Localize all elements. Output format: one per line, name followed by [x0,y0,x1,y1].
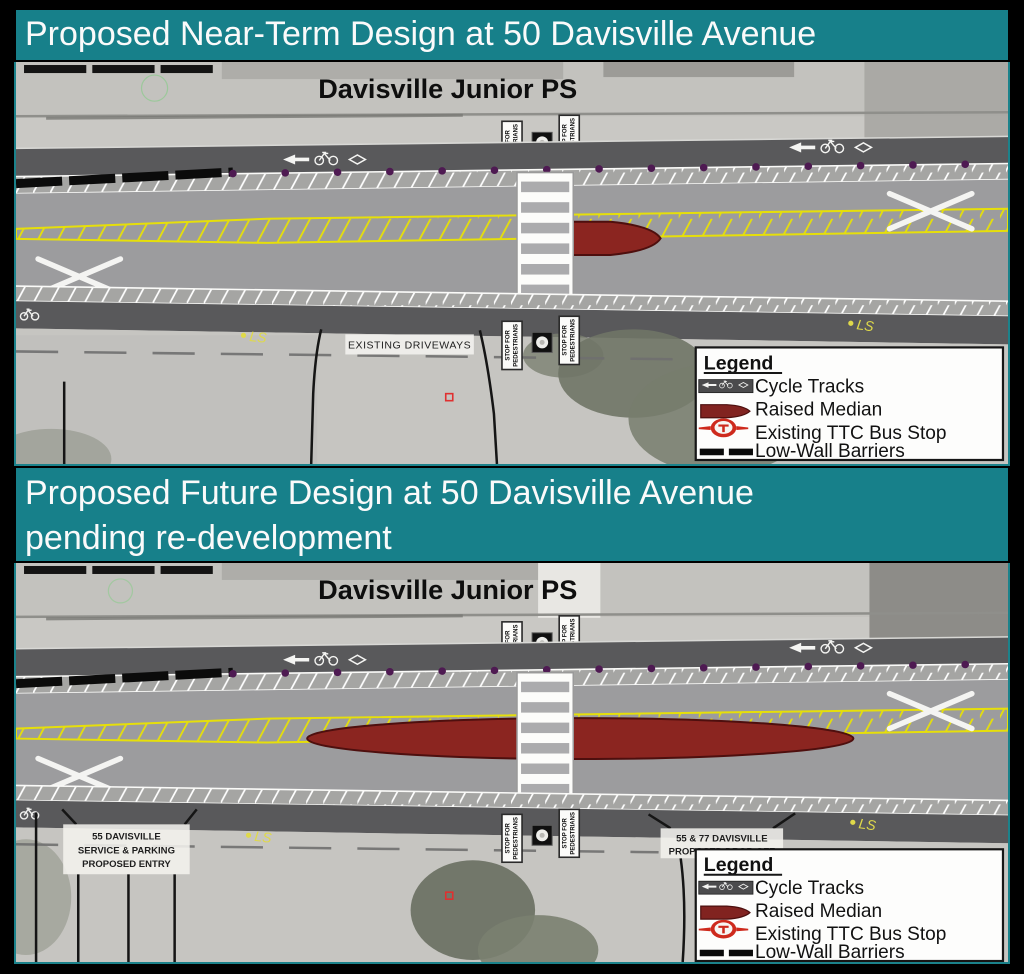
near-term-plan-svg: Davisville Junior PS [16,62,1008,464]
school-label: Davisville Junior PS [318,73,577,104]
svg-text:LS: LS [254,828,273,846]
stop-sign-south-left [502,814,522,862]
pedestrian-signal-south [532,332,552,352]
dropoff-label-line1: 55 & 77 DAVISVILLE [676,833,767,844]
stop-sign-south-left [502,321,522,369]
stop-sign-south-right [559,316,579,364]
school-label: Davisville Junior PS [318,575,577,605]
banner2-title-line1: Proposed Future Design at 50 Davisville … [25,471,1008,516]
existing-driveways-label: EXISTING DRIVEWAYS [348,339,471,351]
future-design-title-banner: Proposed Future Design at 50 Davisville … [14,466,1010,563]
svg-text:LS: LS [856,316,876,334]
banner1-title: Proposed Near-Term Design at 50 Davisvil… [25,15,816,53]
crosswalk [517,673,573,802]
building-roof-bars [24,566,213,574]
stop-sign-south-right [559,809,579,857]
near-term-design-plan: Davisville Junior PS [14,62,1010,466]
svg-text:LS: LS [249,328,268,346]
future-plan-svg: Davisville Junior PS [16,563,1008,962]
pedestrian-signal-south [532,825,552,845]
entry-label-line3: PROPOSED ENTRY [82,859,171,870]
building-roof-bars [24,65,213,73]
building-roof [869,563,1008,639]
raised-median [307,718,853,759]
crosswalk [517,173,573,303]
entry-label: 55 DAVISVILLE SERVICE & PARKING PROPOSED… [78,831,175,870]
building-roof [864,62,1008,148]
banner2-title-line2: pending re-development [25,516,1008,561]
near-term-title-banner: Proposed Near-Term Design at 50 Davisvil… [14,8,1010,62]
svg-text:LS: LS [858,815,878,833]
future-design-plan: Davisville Junior PS [14,563,1010,964]
entry-label-line2: SERVICE & PARKING [78,845,175,856]
entry-label-line1: 55 DAVISVILLE [92,831,161,842]
